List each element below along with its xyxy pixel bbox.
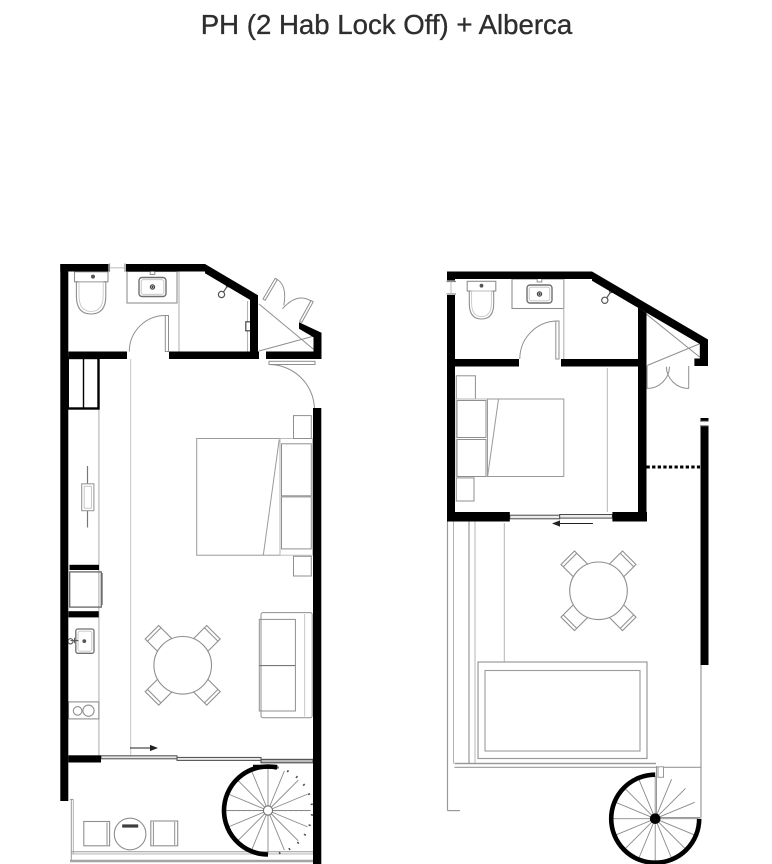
svg-text:PH (2 Hab Lock Off) + Alberca: PH (2 Hab Lock Off) + Alberca — [201, 9, 573, 40]
